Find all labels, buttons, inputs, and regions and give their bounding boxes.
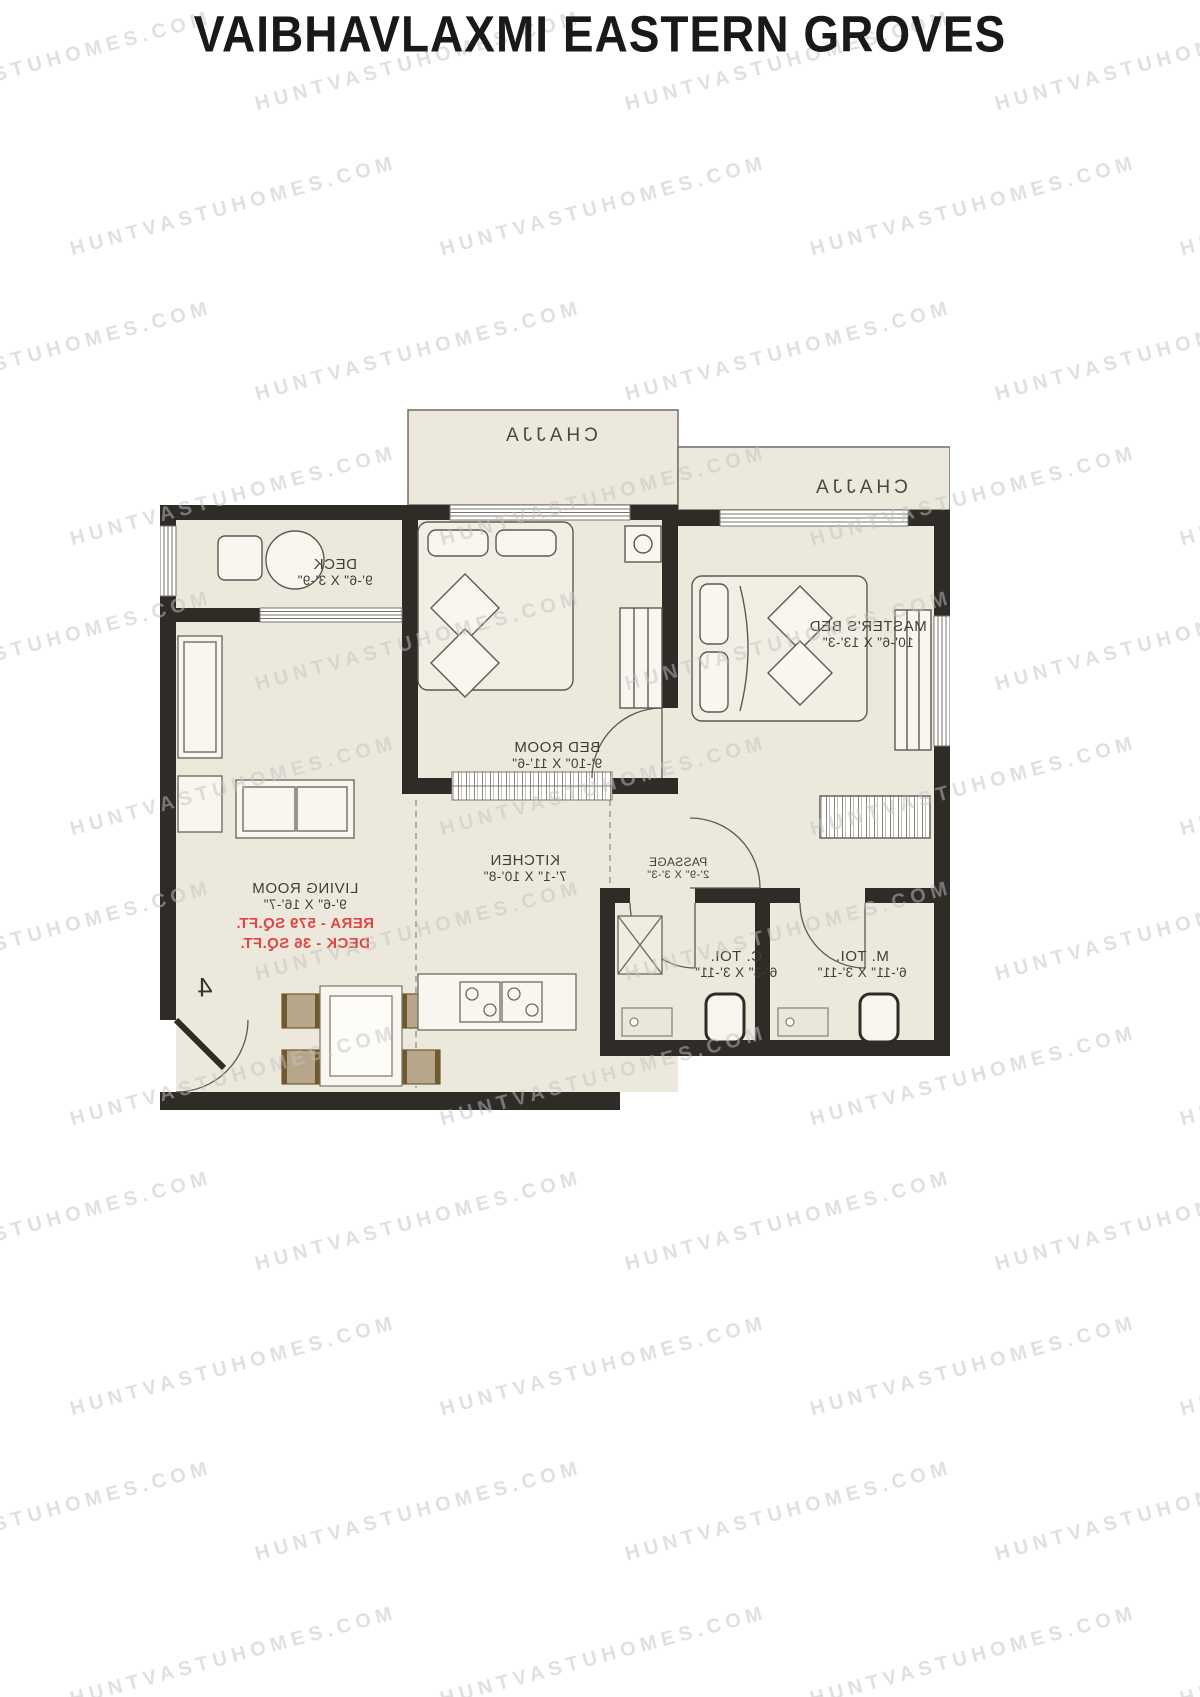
room-label-masters-bed: MASTER'S BED 10'-6" X 13'-3" [809, 618, 927, 650]
kitchen-fixtures [418, 974, 576, 1030]
watermark-text: HUNTVASTUHOMES.COM [993, 297, 1200, 407]
room-name: M. TOI. [817, 948, 906, 965]
room-dimensions: 6'-3" X 3'-11" [695, 965, 777, 980]
room-dimensions: 9'-10" X 11'-6" [512, 756, 602, 771]
room-label-passage: PASSAGE 2'-9" X 3'-3" [647, 855, 709, 881]
room-label-m-toilet: M. TOI. 6'-11" X 3'-11" [817, 948, 906, 980]
deck-area-note: DECK - 36 SQ.FT. [236, 935, 374, 952]
page-title: VAIBHAVLAXMI EASTERN GROVES [0, 4, 1200, 63]
rera-area-note: RERA - 579 SQ.FT. [236, 915, 374, 932]
watermark-text: HUNTVASTUHOMES.COM [0, 1167, 215, 1277]
room-name: PASSAGE [647, 855, 709, 869]
room-name: KITCHEN [483, 852, 566, 869]
room-label-chajja-top: CHAJJA [502, 425, 598, 447]
watermark-text: HUNTVASTUHOMES.COM [808, 1312, 1140, 1422]
room-name: DECK [297, 556, 372, 573]
watermark-text: HUNTVASTUHOMES.COM [438, 1602, 770, 1697]
watermark-text: HUNTVASTUHOMES.COM [623, 297, 955, 407]
watermark-text: HUNTVASTUHOMES.COM [1178, 152, 1200, 262]
room-name: C. TOI. [695, 948, 777, 965]
room-name: CHAJJA [812, 477, 908, 499]
room-label-chajja-right: CHAJJA [812, 477, 908, 499]
watermark-text: HUNTVASTUHOMES.COM [623, 1457, 955, 1567]
room-label-c-toilet: C. TOI. 6'-3" X 3'-11" [695, 948, 777, 980]
watermark-text: HUNTVASTUHOMES.COM [0, 297, 215, 407]
watermark-text: HUNTVASTUHOMES.COM [623, 1167, 955, 1277]
watermark-text: HUNTVASTUHOMES.COM [253, 297, 585, 407]
room-dimensions: 10'-6" X 13'-3" [809, 635, 927, 650]
room-label-bed-room: BED ROOM 9'-10" X 11'-6" [512, 739, 602, 771]
watermark-text: HUNTVASTUHOMES.COM [993, 877, 1200, 987]
room-name: MASTER'S BED [809, 618, 927, 635]
watermark-text: HUNTVASTUHOMES.COM [1178, 1022, 1200, 1132]
floor-plan-page: VAIBHAVLAXMI EASTERN GROVES HUNTVASTUHOM… [0, 0, 1200, 1697]
room-dimensions: 2'-9" X 3'-3" [647, 869, 709, 881]
watermark-text: HUNTVASTUHOMES.COM [993, 587, 1200, 697]
floor-plan: CHAJJA CHAJJA DECK 9'-6" X 3'-9" BED ROO… [160, 408, 950, 1110]
watermark-text: HUNTVASTUHOMES.COM [253, 1457, 585, 1567]
watermark-text: HUNTVASTUHOMES.COM [1178, 732, 1200, 842]
room-dimensions: 9'-6" X 3'-9" [297, 573, 372, 588]
room-name: BED ROOM [512, 739, 602, 756]
watermark-text: HUNTVASTUHOMES.COM [68, 1602, 400, 1697]
watermark-text: HUNTVASTUHOMES.COM [438, 1312, 770, 1422]
watermark-text: HUNTVASTUHOMES.COM [808, 152, 1140, 262]
watermark-text: HUNTVASTUHOMES.COM [993, 1167, 1200, 1277]
watermark-text: HUNTVASTUHOMES.COM [68, 1312, 400, 1422]
room-label-living-room: LIVING ROOM 9'-6" X 16'-7" RERA - 579 SQ… [236, 880, 374, 952]
watermark-text: HUNTVASTUHOMES.COM [993, 1457, 1200, 1567]
unit-number: 4 [197, 973, 212, 1004]
watermark-text: HUNTVASTUHOMES.COM [1178, 1312, 1200, 1422]
room-name: CHAJJA [502, 425, 598, 447]
room-label-kitchen: KITCHEN 7'-1" X 10'-8" [483, 852, 566, 884]
room-name: LIVING ROOM [236, 880, 374, 897]
bed-room-furniture [418, 522, 662, 708]
room-label-deck: DECK 9'-6" X 3'-9" [297, 556, 372, 588]
watermark-text: HUNTVASTUHOMES.COM [1178, 1602, 1200, 1697]
watermark-text: HUNTVASTUHOMES.COM [68, 152, 400, 262]
watermark-text: HUNTVASTUHOMES.COM [1178, 442, 1200, 552]
room-dimensions: 7'-1" X 10'-8" [483, 869, 566, 884]
watermark-text: HUNTVASTUHOMES.COM [253, 1167, 585, 1277]
room-dimensions: 9'-6" X 16'-7" [236, 897, 374, 912]
watermark-text: HUNTVASTUHOMES.COM [0, 1457, 215, 1567]
watermark-text: HUNTVASTUHOMES.COM [808, 1602, 1140, 1697]
room-dimensions: 6'-11" X 3'-11" [817, 965, 906, 980]
watermark-text: HUNTVASTUHOMES.COM [438, 152, 770, 262]
